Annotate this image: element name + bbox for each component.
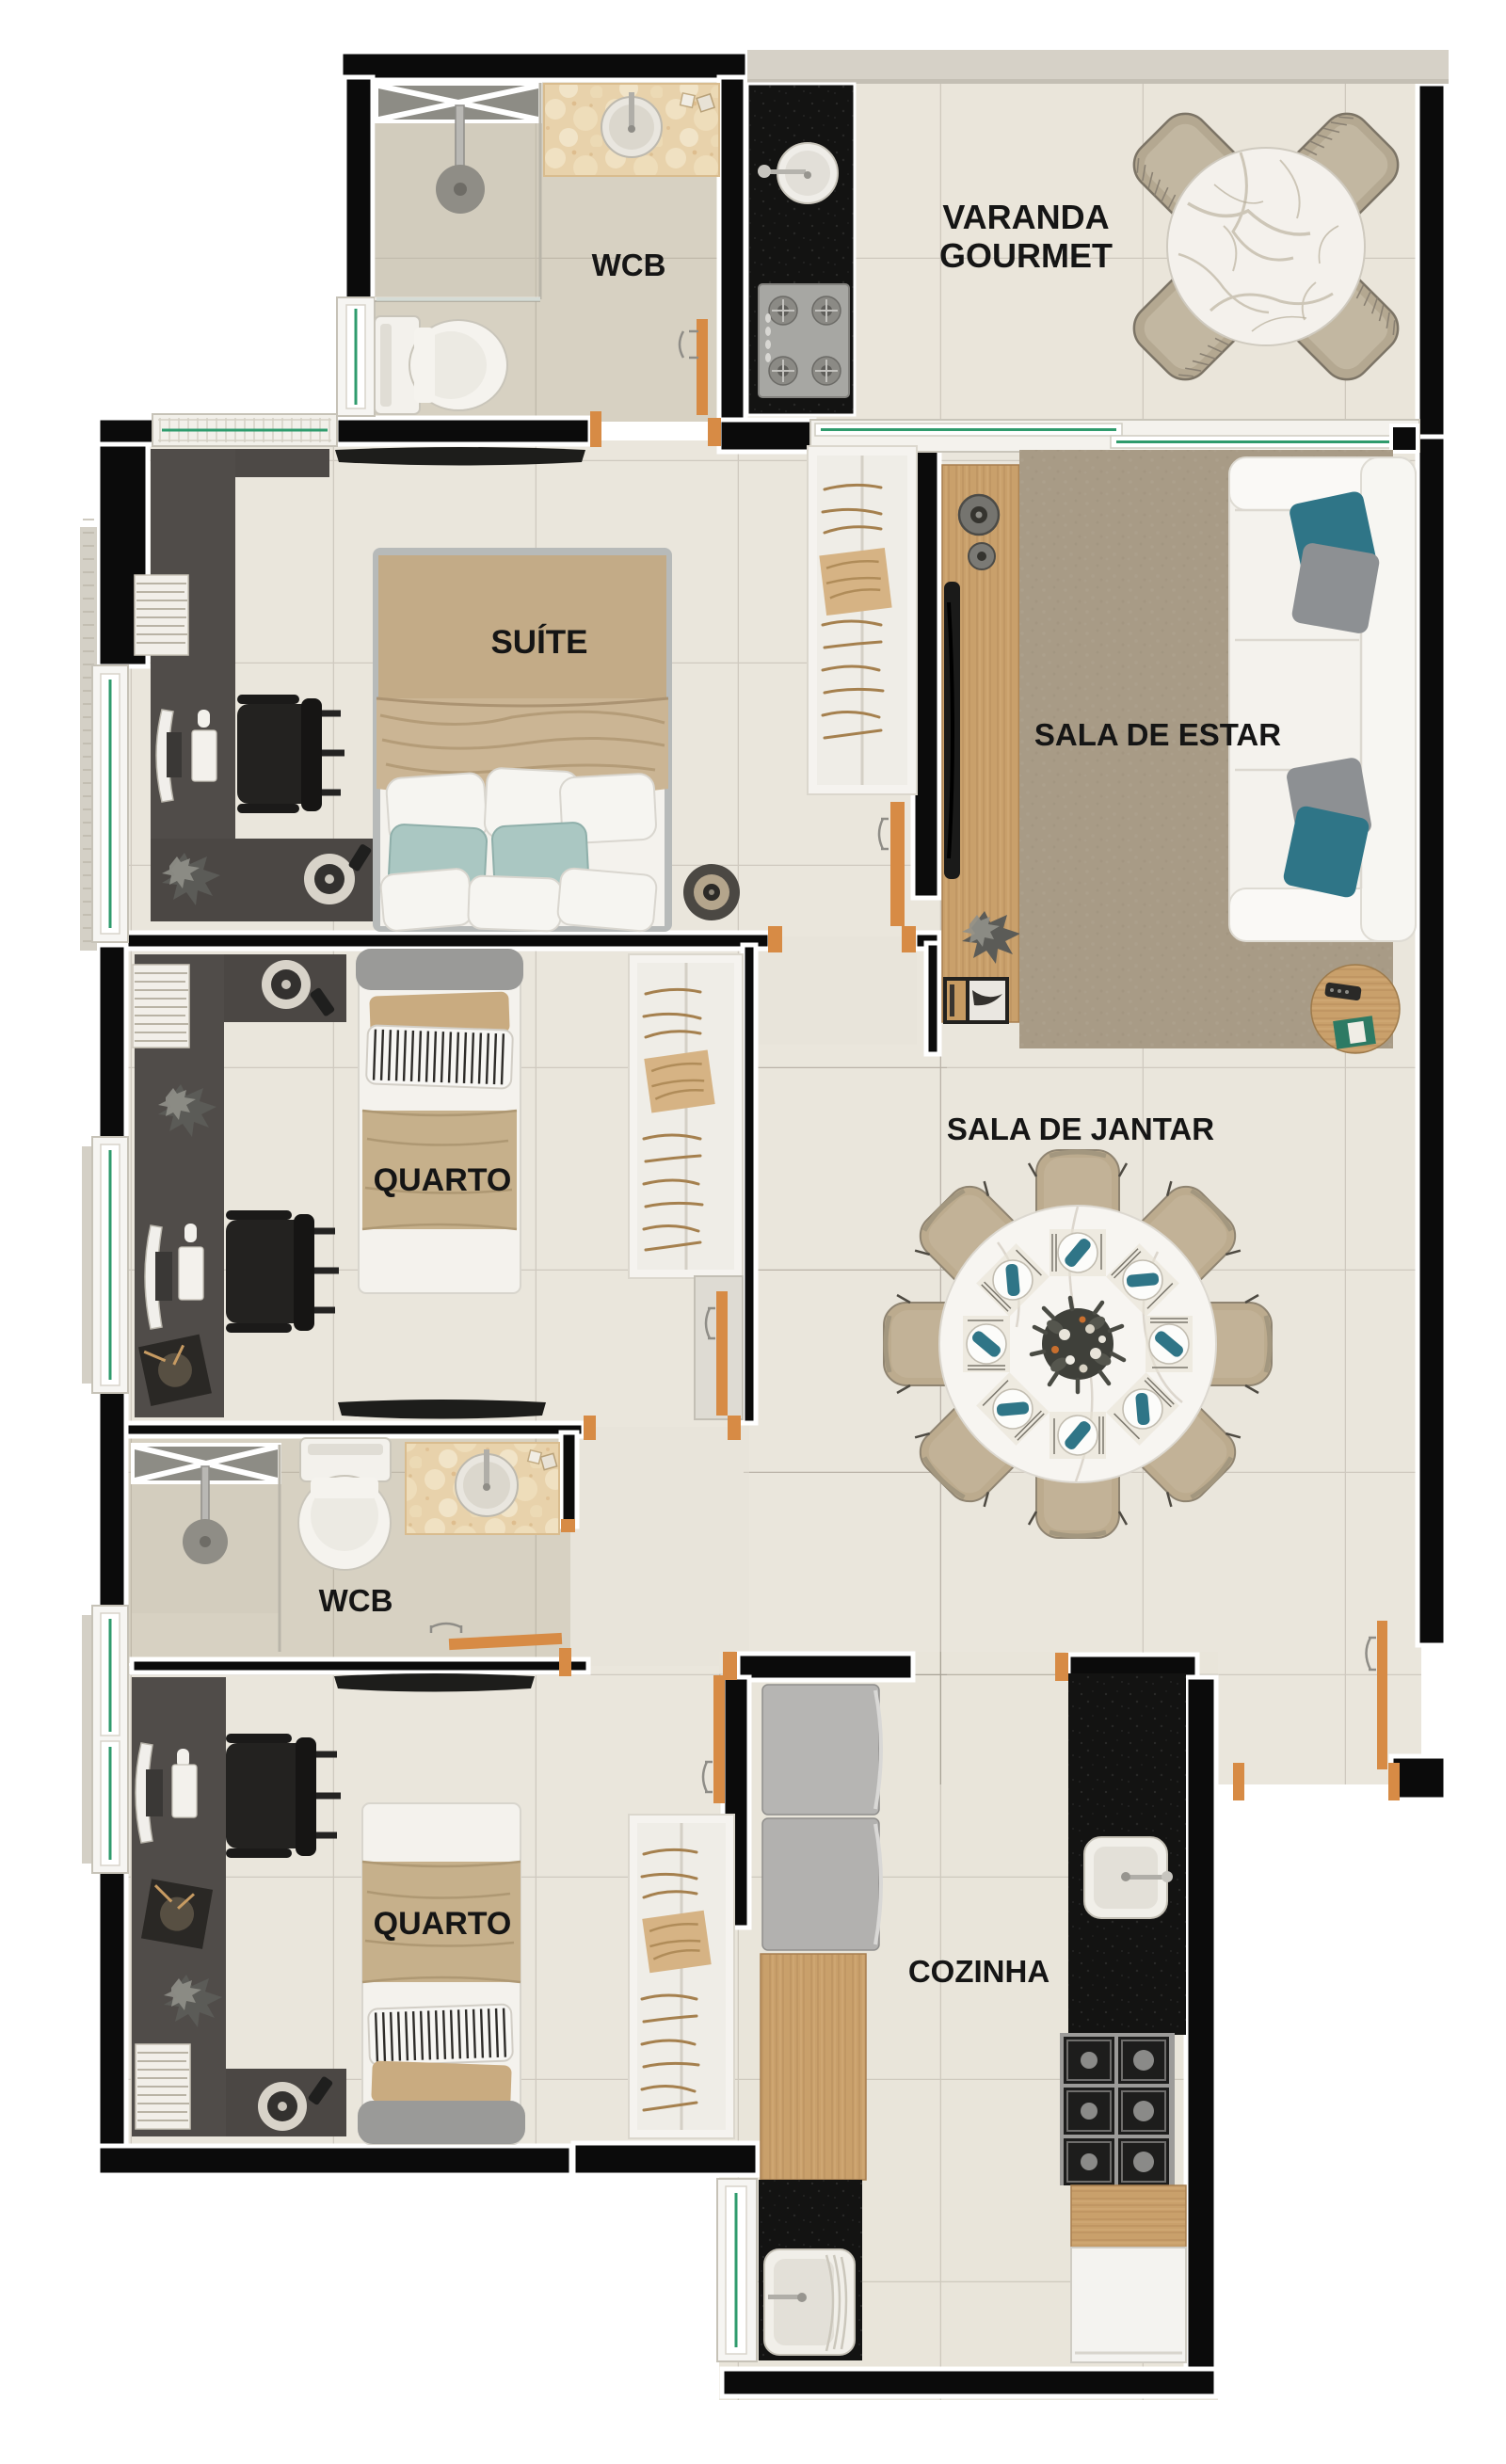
- svg-text:QUARTO: QUARTO: [374, 1906, 512, 1942]
- svg-text:COZINHA: COZINHA: [908, 1954, 1049, 1989]
- svg-text:QUARTO: QUARTO: [374, 1162, 512, 1198]
- svg-text:VARANDA: VARANDA: [942, 198, 1109, 236]
- svg-text:SUÍTE: SUÍTE: [490, 623, 587, 661]
- svg-text:GOURMET: GOURMET: [939, 236, 1113, 275]
- svg-text:SALA DE JANTAR: SALA DE JANTAR: [947, 1112, 1214, 1146]
- svg-text:SALA DE ESTAR: SALA DE ESTAR: [1034, 717, 1281, 752]
- svg-text:WCB: WCB: [319, 1583, 393, 1618]
- svg-text:WCB: WCB: [592, 248, 666, 282]
